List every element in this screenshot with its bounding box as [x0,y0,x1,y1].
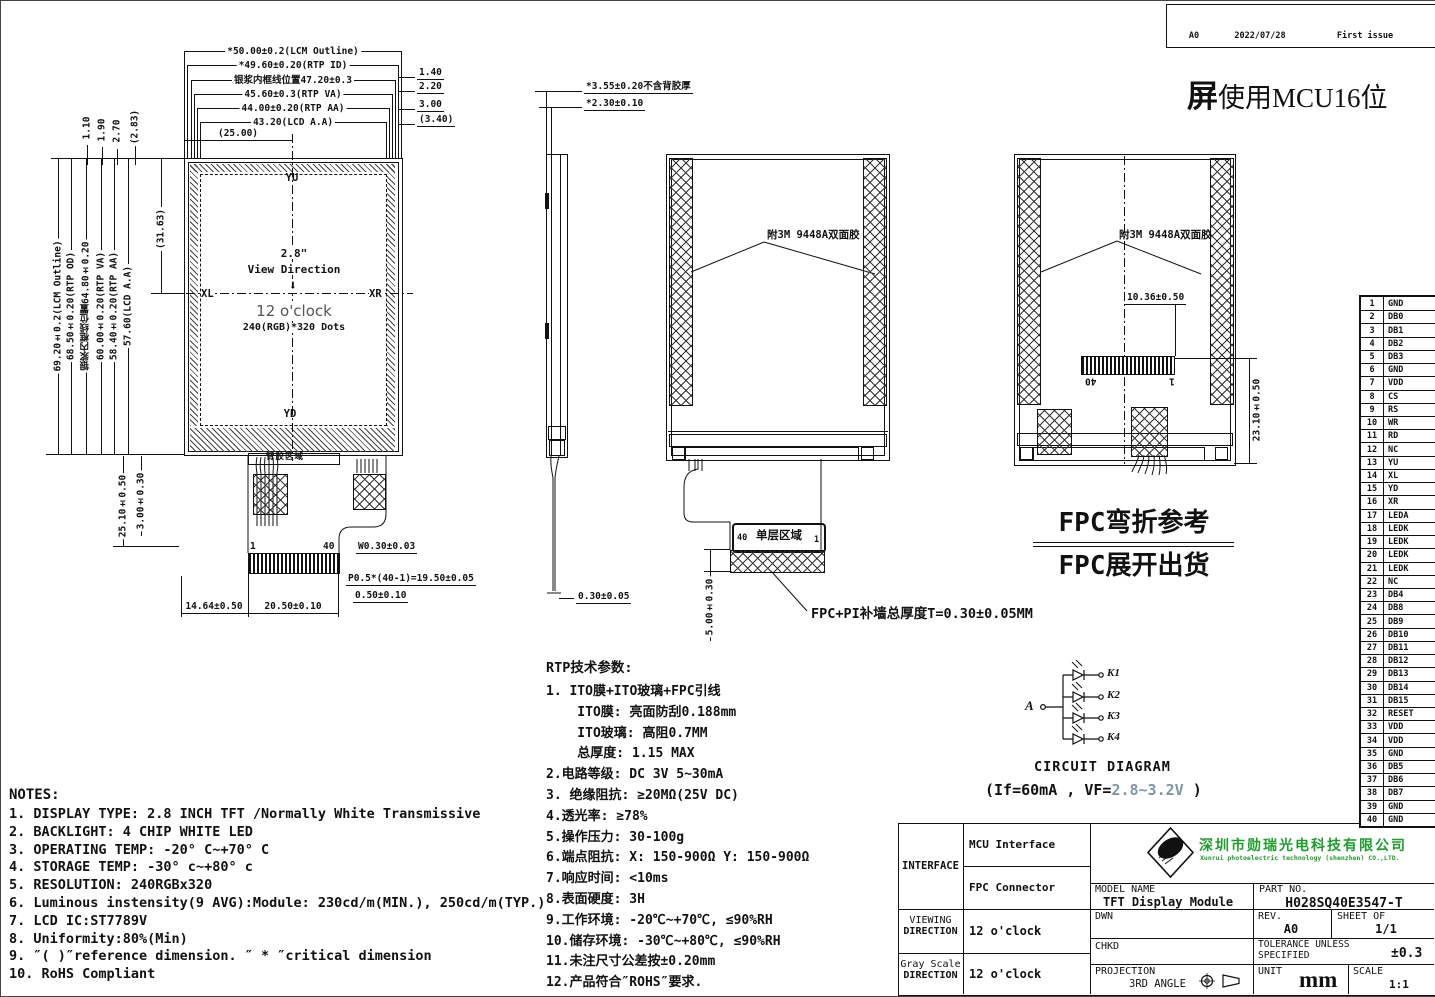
dim-fpc-thickness: 0.30±0.05 [576,591,631,604]
pin-table-row: 11 RD [1361,429,1435,442]
fpcpi-leader [771,571,807,611]
pin-table-row: 31 DB15 [1361,694,1435,707]
pin-number: 39 [1361,801,1384,813]
third-angle-projection-icon [1197,971,1245,991]
front-pin40-label: 40 [321,541,336,553]
back-open-tape-left [669,158,693,406]
notes-line: 3. OPERATING TEMP: -20° C~+70° C [9,842,529,860]
dim-rtp-od-h: 68.50±0.20(RTP OD) [66,250,76,362]
rtp-line: 2.电路等级: DC 3V 5~30mA [546,765,906,786]
front-fpc-pad-right [353,474,386,510]
pin-name: WR [1384,418,1435,428]
pin-table-row: 30 DB14 [1361,681,1435,694]
tolerance-label-2: SPECIFIED [1258,951,1309,961]
dim-silver-frame-w: 银浆内框线位置47.20±0.3 [232,75,354,87]
pin-number: 22 [1361,576,1384,588]
pin-name: DB13 [1384,669,1435,679]
pin-number: 12 [1361,443,1384,455]
pin-name: DB11 [1384,643,1435,653]
pin-name: LEDK [1384,537,1435,547]
pin-table-row: 39 GND [1361,800,1435,813]
dim-step-2-83: (2.83) [130,108,140,146]
dim-lcm-outline-w: *50.00±0.2(LCM Outline) [225,46,361,58]
pin-table-row: 2 DB0 [1361,310,1435,323]
pin-table-row: 26 DB10 [1361,628,1435,641]
pin-number: 2 [1361,311,1384,323]
pin-name: VDD [1384,378,1435,388]
sheet-of-value: 1/1 [1375,923,1397,935]
pin-name: GND [1384,365,1435,375]
pin-table-row: 28 DB12 [1361,654,1435,667]
pin-name: GND [1384,802,1435,812]
clock-direction-label: 12 o'clock [256,304,332,319]
notes-line: 10. RoHS Compliant [9,966,529,984]
notes-section: NOTES: 1. DISPLAY TYPE: 2.8 INCH TFT /No… [9,787,529,984]
pin-name: NC [1384,445,1435,455]
pin-table-row: 9 RS [1361,403,1435,416]
pin-name: DB15 [1384,696,1435,706]
dim-edge-2-20: 2.20 [417,81,444,94]
folded-connector [1081,356,1175,375]
rtp-line: 3. 绝缘阻抗: ≥20MΩ(25V DC) [546,786,906,807]
circuit-diagram-lines [1041,660,1104,744]
pin-name: DB7 [1384,788,1435,798]
folded-centerline [1124,156,1125,464]
pin-name: GND [1384,815,1435,825]
pin-table-row: 27 DB11 [1361,641,1435,654]
dim-23-10: 23.10±0.50 [1252,377,1262,443]
pin-name: DB5 [1384,762,1435,772]
viewing-value: 12 o'clock [969,925,1041,937]
pin-number: 15 [1361,483,1384,495]
folded-pad-left [1037,409,1072,455]
pin-table-row: 8 CS [1361,390,1435,403]
view-direction-label: View Direction [248,264,341,275]
rtp-line: 1. ITO膜+ITO玻璃+FPC引线 [546,682,906,703]
pin-table-row: 32 RESET [1361,707,1435,720]
back-folded-tape-left [1017,158,1041,405]
notes-line: 9. ″( )″reference dimension. ″ * ″critic… [9,948,529,966]
pin-table-row: 7 VDD [1361,376,1435,389]
pin-number: 32 [1361,708,1384,720]
side-contact-mark-1 [545,193,549,209]
single-layer-area-label: 单层区域 [756,530,802,542]
part-no-value: H028SQ40E3547-T [1285,897,1402,910]
back-folded-tape-right [1210,158,1234,405]
pin-name: YD [1384,484,1435,494]
projection-value: 3RD ANGLE [1129,979,1186,990]
rtp-line: 9.工作环境: -20℃~+70℃, ≤90%RH [546,911,906,932]
rtp-title: RTP技术参数: [546,656,906,676]
dim-5-00: 5.00±0.30 [705,577,715,638]
projection-label: PROJECTION [1095,967,1155,977]
dim-25-10: 25.10±0.50 [118,473,128,539]
front-fpc-wires-right [357,459,377,473]
pin-number: 13 [1361,457,1384,469]
rtp-parameters: RTP技术参数: 1. ITO膜+ITO玻璃+FPC引线 ITO膜: 亮面防刮0… [546,656,906,994]
pin-name: RESET [1384,709,1435,719]
unit-label: UNIT [1258,967,1282,977]
axis-label-xr: XR [369,289,382,300]
pin-number: 25 [1361,615,1384,627]
back-folded-corner-right [1215,447,1228,460]
pin-name: DB4 [1384,590,1435,600]
notes-line: 4. STORAGE TEMP: -30° c~+80° c [9,859,529,877]
gray-scale-cell: Gray Scale DIRECTION [895,959,966,981]
resolution-dots-label: 240(RGB)*320 Dots [243,323,345,333]
pin-number: 1 [1361,297,1384,310]
pin-table-row: 23 DB4 [1361,588,1435,601]
dim-rtp-va-h: 60.00±0.20(RTP VA) [96,250,106,362]
back-folded-corner-left [1020,447,1033,460]
interface-label: INTERFACE [902,860,959,872]
interface-fpc: FPC Connector [969,882,1055,893]
dim-thickness-total: *3.55±0.20不含背胶厚 [584,81,693,94]
side-fpc-tail [547,456,561,593]
pin-name: DB1 [1384,326,1435,336]
pin-table-row: 10 WR [1361,416,1435,429]
dim-lcm-outline-h: 69.20±0.2(LCM Outline) [53,238,63,373]
circuit-k3-label: K3 [1107,711,1120,722]
pin-name: LEDA [1384,511,1435,521]
circuit-k2-label: K2 [1107,690,1120,701]
pin-table-row: 12 NC [1361,442,1435,455]
tape-label-open: 附3M 9448A双面胶 [765,229,862,242]
pin-number: 3 [1361,324,1384,336]
pin-number: 6 [1361,364,1384,376]
pin-name: DB3 [1384,352,1435,362]
notes-line: 5. RESOLUTION: 240RGBx320 [9,877,529,895]
part-no-label: PART NO. [1259,885,1307,895]
rtp-line: 总厚度: 1.15 MAX [546,744,906,765]
pin-table-row: 17 LEDA [1361,509,1435,522]
gray-value: 12 o'clock [969,968,1041,980]
axis-label-yd: YD [284,409,297,420]
dim-rtp-va-w: 45.60±0.3(RTP VA) [242,89,343,101]
viewing-label-1: VIEWING [898,915,963,926]
circuit-title: CIRCUIT DIAGRAM [1034,761,1171,775]
pin-number: 10 [1361,417,1384,429]
pin-number: 8 [1361,391,1384,403]
notes-lines: 1. DISPLAY TYPE: 2.8 INCH TFT /Normally … [9,806,529,984]
dim-silver-frame-h: 银浆内框线位置64.80±0.20 [81,240,91,373]
chkd-label: CHKD [1095,942,1119,952]
front-fpc-connector [248,553,340,574]
pin-name: LEDK [1384,524,1435,534]
notes-line: 2. BACKLIGHT: 4 CHIP WHITE LED [9,824,529,842]
panel-size-label: 2.8" [281,248,308,259]
dim-14-64: 14.64±0.50 [183,601,244,613]
pin-name: DB14 [1384,683,1435,693]
pin-number: 24 [1361,602,1384,614]
dim-edge-1-40: 1.40 [417,67,444,80]
front-pin1-label: 1 [248,541,258,553]
company-logo-icon [1147,827,1194,878]
mcu-note-bold: 屏 [1187,79,1218,114]
pin-table-row: 3 DB1 [1361,323,1435,336]
folded-pad-right [1131,407,1168,457]
pin-name: RD [1384,431,1435,441]
pin-number: 36 [1361,761,1384,773]
pin-number: 9 [1361,404,1384,416]
tolerance-value: ±0.3 [1391,947,1422,960]
pin-number: 5 [1361,351,1384,363]
tape-label-folded: 附3M 9448A双面胶 [1117,229,1214,242]
rtp-line: 7.响应时间: <10ms [546,869,906,890]
tolerance-label-1: TOLERANCE UNLESS [1258,940,1350,950]
pin-number: 20 [1361,549,1384,561]
fpc-bend-note: FPC弯折参考 [1059,510,1210,536]
gray-label-2: DIRECTION [895,970,966,981]
pin-table-row: 15 YD [1361,482,1435,495]
dim-0-50: 0.50±0.10 [353,590,408,603]
dwn-label: DWN [1095,912,1113,922]
pin-table-row: 5 DB3 [1361,350,1435,363]
front-bezel-hatch-right [387,164,395,426]
pin-table-row: 24 DB8 [1361,601,1435,614]
pin-table-row: 29 DB13 [1361,667,1435,680]
rtp-line: 6.端点阻抗: X: 150-900Ω Y: 150-900Ω [546,848,906,869]
pin-number: 17 [1361,510,1384,522]
axis-label-yu: YU [286,173,299,184]
front-active-area [200,174,387,426]
pin-table-row: 38 DB7 [1361,786,1435,799]
pin-number: 11 [1361,430,1384,442]
dim-31-63: (31.63) [156,207,166,251]
mcu-note: 屏使用MCU16位 [1187,71,1388,116]
pin-name: LEDK [1384,564,1435,574]
pin-table-row: 14 XL [1361,469,1435,482]
pin-table-row: 6 GND [1361,363,1435,376]
notes-line: 8. Uniformity:80%(Min) [9,931,529,949]
notes-title: NOTES: [9,787,529,803]
dim-thickness-2-30: *2.30±0.10 [584,98,645,111]
dim-20-50: 20.50±0.10 [262,601,323,613]
dim-edge-3-00: 3.00 [417,99,444,112]
pin-name: VDD [1384,722,1435,732]
side-contact-mark-2 [545,323,549,339]
model-name-value: TFT Display Module [1103,896,1233,908]
notes-line: 6. Luminous instensity(9 AVG):Module: 23… [9,895,529,913]
rev-label: REV. [1258,912,1282,922]
dim-10-36: 10.36±0.50 [1125,292,1186,305]
pin-number: 4 [1361,338,1384,350]
pin-table-row: 21 LEDK [1361,562,1435,575]
open-stiffener [730,550,825,573]
notes-line: 7. LCD IC:ST7789V [9,913,529,931]
pin-name: RS [1384,405,1435,415]
pin-name: GND [1384,749,1435,759]
dim-step-2-70: 2.70 [112,118,122,145]
pin-table-row: 33 VDD [1361,720,1435,733]
pin-number: 21 [1361,563,1384,575]
pin-table-row: 40 GND [1361,813,1435,826]
scale-label: SCALE [1353,967,1383,977]
folded-pin40-label: 40 [1083,375,1098,387]
revision-rev: A0 [1187,31,1201,42]
viewing-label-2: DIRECTION [898,926,963,937]
pin-table-row: 16 XR [1361,495,1435,508]
pin-number: 29 [1361,668,1384,680]
pin-number: 34 [1361,734,1384,746]
rtp-line: 11.未注尺寸公差按±0.20mm [546,952,906,973]
circuit-spec-value: 2.8~3.2V [1111,781,1183,799]
pin-name: XL [1384,471,1435,481]
pin-name: DB2 [1384,339,1435,349]
pin-number: 40 [1361,814,1384,826]
pin-table-row: 13 YU [1361,456,1435,469]
circuit-spec-suffix: ) [1184,781,1202,799]
rtp-lines: 1. ITO膜+ITO玻璃+FPC引线 ITO膜: 亮面防刮0.188mm IT… [546,682,906,994]
folded-pin1-label: 1 [1167,375,1177,387]
fpc-flat-note: FPC展开出货 [1059,553,1210,579]
notes-line: 1. DISPLAY TYPE: 2.8 INCH TFT /Normally … [9,806,529,824]
side-backlight-base-1 [548,426,566,440]
dim-edge-3-40: (3.40) [417,114,455,127]
pin-name: XR [1384,497,1435,507]
pin-number: 35 [1361,748,1384,760]
pin-table-row: 19 LEDK [1361,535,1435,548]
pin-number: 26 [1361,629,1384,641]
pin-number: 31 [1361,695,1384,707]
pin-name: DB0 [1384,312,1435,322]
circuit-k1-label: K1 [1107,668,1120,679]
pin-number: 28 [1361,655,1384,667]
pin-table-row: 1 GND [1361,297,1435,310]
front-fpc-pad-left [253,474,288,515]
rtp-line: 5.操作压力: 30-100g [546,828,906,849]
open-pin1-label: 1 [812,535,821,546]
pin-name: DB8 [1384,603,1435,613]
circuit-spec: (If=60mA , VF=2.8~3.2V ) [985,781,1202,799]
pin-number: 38 [1361,787,1384,799]
back-open-inner [671,159,885,456]
dim-rtp-id-w: *49.60±0.20(RTP ID) [237,60,350,72]
front-bezel-hatch-left [190,164,198,426]
rtp-line: 8.表面硬度: 3H [546,890,906,911]
scale-value: 1:1 [1389,979,1409,990]
back-open-corner-left [672,447,685,460]
pin-table-row: 20 LEDK [1361,548,1435,561]
adhesive-area-label: 背胶区域 [266,453,304,462]
dim-w0-30: W0.30±0.03 [356,541,417,554]
pin-name: CS [1384,392,1435,402]
interface-label-cell: INTERFACE [898,823,963,909]
rev-value: A0 [1284,923,1298,935]
fpc-pi-note: FPC+PI补墙总厚度T=0.30±0.05MM [809,607,1035,623]
revision-desc: First issue [1335,31,1395,42]
side-view-outline [546,154,568,458]
pin-name: DB9 [1384,617,1435,627]
pin-table-row: 35 GND [1361,747,1435,760]
pin-name: DB10 [1384,630,1435,640]
dim-lcd-aa-h: 57.60(LCD A.A) [123,264,133,348]
pin-table-row: 25 DB9 [1361,614,1435,627]
back-open-bottom-band [685,447,859,461]
rtp-line: 10.储存环境: -30℃~+80℃, ≤90%RH [546,932,906,953]
pin-number: 30 [1361,682,1384,694]
back-open-ledge [669,434,887,447]
back-open-corner-right [861,447,874,460]
pin-name: DB12 [1384,656,1435,666]
pin-name: DB6 [1384,775,1435,785]
pin-table-row: 36 DB5 [1361,760,1435,773]
pin-table-row: 34 VDD [1361,733,1435,746]
pin-name: NC [1384,577,1435,587]
pin-number: 16 [1361,496,1384,508]
open-pin40-label: 40 [735,533,749,544]
pin-number: 7 [1361,377,1384,389]
dim-step-1-10: 1.10 [82,115,92,142]
circuit-anode-label: A [1025,699,1034,712]
circuit-spec-prefix: (If=60mA , VF= [985,781,1111,799]
rtp-line: 4.透光率: ≥78% [546,807,906,828]
pin-table-row: 22 NC [1361,575,1435,588]
rtp-line: ITO玻璃: 高阻0.7MM [546,724,906,745]
dim-3-00-v: 3.00±0.30 [136,471,146,532]
pin-number: 19 [1361,536,1384,548]
gray-label-1: Gray Scale [895,959,966,970]
drawing-sheet: A0 2022/07/28 First issue 屏使用MCU16位 YU Y… [0,0,1435,997]
pin-number: 33 [1361,721,1384,733]
rtp-line: ITO膜: 亮面防刮0.188mm [546,703,906,724]
dim-rtp-aa-h: 58.40±0.20(RTP AA) [109,250,119,362]
mcu-note-rest: 使用MCU16位 [1218,83,1388,113]
dim-25: (25.00) [216,128,260,140]
interface-mcu: MCU Interface [969,839,1055,850]
model-name-label: MODEL NAME [1095,885,1155,895]
dim-pitch: P0.5*(40-1)=19.50±0.05 [346,573,476,586]
pin-table-row: 18 LEDK [1361,522,1435,535]
pin-number: 14 [1361,470,1384,482]
pin-name: VDD [1384,736,1435,746]
unit-value: mm [1299,968,1337,991]
revision-date: 2022/07/28 [1232,31,1287,42]
axis-label-xl: XL [201,289,214,300]
side-backlight-base-2 [549,440,565,456]
dim-step-1-90: 1.90 [97,117,107,144]
pin-number: 18 [1361,523,1384,535]
viewing-direction-cell: VIEWING DIRECTION [898,915,963,937]
circuit-k4-label: K4 [1107,732,1120,743]
view-direction-down-arrow-icon: ⬇ [289,279,297,293]
pin-number: 23 [1361,589,1384,601]
pin-table-row: 4 DB2 [1361,337,1435,350]
dim-lcd-aa-w: 43.20(LCD A.A) [251,117,335,129]
pin-number: 37 [1361,774,1384,786]
pin-name: GND [1384,299,1435,309]
pin-name: LEDK [1384,550,1435,560]
pin-table-row: 37 DB6 [1361,773,1435,786]
pin-name: YU [1384,458,1435,468]
company-name-cn: 深圳市勋瑞光电科技有限公司 [1199,835,1407,855]
pin-table: 1 GND 2 DB0 3 DB1 4 DB2 5 DB3 6 GND 7 VD… [1359,295,1435,828]
pin-number: 27 [1361,642,1384,654]
company-name-en: Xunrui photoelectric technology (shenzhe… [1200,854,1400,862]
dim-rtp-aa-w: 44.00±0.20(RTP AA) [240,103,347,115]
sheet-of-label: SHEET OF [1337,912,1385,922]
back-open-tape-right [863,158,887,406]
rtp-line: 12.产品符合″ROHS″要求. [546,973,906,994]
